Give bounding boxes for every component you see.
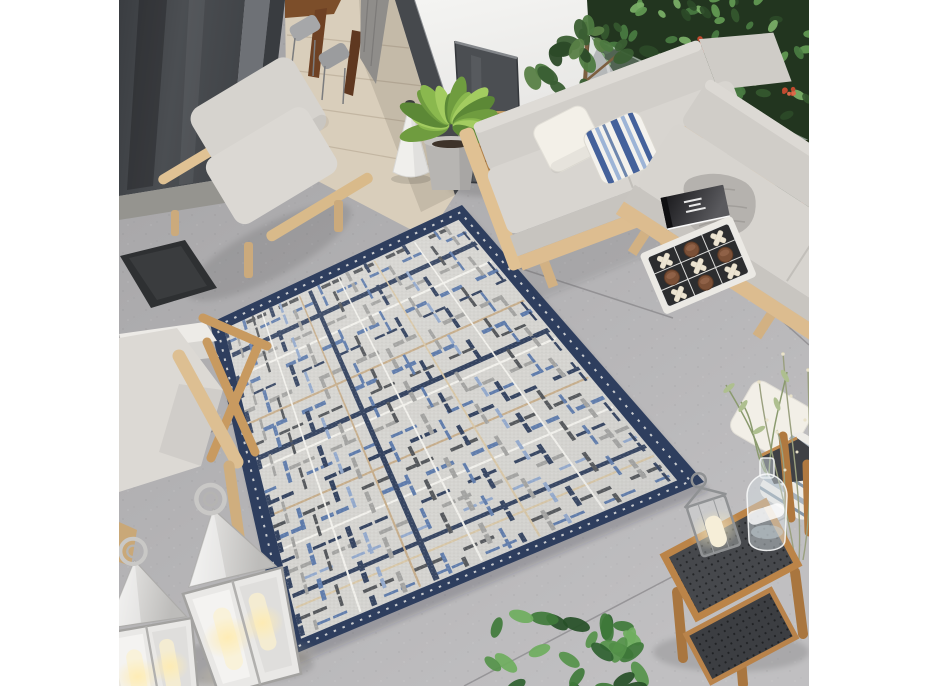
product-photo bbox=[119, 0, 809, 686]
product-photo-page bbox=[0, 0, 928, 686]
berry bbox=[782, 90, 786, 94]
berry bbox=[791, 91, 796, 96]
berry bbox=[791, 87, 796, 92]
vase-water bbox=[751, 525, 783, 539]
